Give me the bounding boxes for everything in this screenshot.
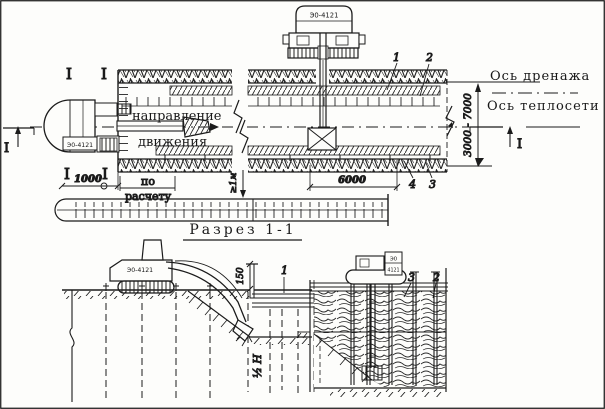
left-boundary-break xyxy=(70,290,74,402)
callout-3: 3 xyxy=(429,178,436,191)
scheme-drawing: Э0-4121 Э0-4121 I I I xyxy=(0,0,605,409)
dim-width-range: 3000 - 7000 xyxy=(447,83,492,167)
drawing-sheet: Э0-4121 Э0-4121 I I I xyxy=(0,0,605,409)
trench-section-shored: Э0 4121 3 2 xyxy=(297,252,448,397)
callout-2-section: 2 xyxy=(432,271,440,284)
excavator-top-label: Э0-4121 xyxy=(310,12,339,20)
callout-1: 1 xyxy=(393,51,400,64)
section-mark-i: I xyxy=(66,65,72,83)
dim-half-depth-text: ½ Н xyxy=(251,354,264,378)
pile-machine-label-line2: 4121 xyxy=(387,268,399,274)
excavator-section-label: Э0-4121 xyxy=(127,267,153,274)
excavator-plan-label: Э0-4121 xyxy=(67,142,93,149)
pile-machine-label-line1: Э0 xyxy=(390,257,398,263)
section-mark-i: I xyxy=(102,165,108,183)
dim-calc-word1: по xyxy=(141,175,155,188)
callout-4: 4 xyxy=(408,178,416,191)
axis-drain-label: Ось дренажа xyxy=(490,69,590,84)
dim-span-text: 6000 xyxy=(338,175,366,186)
section-mark-i: I xyxy=(101,65,107,83)
dim-min-distance: ≥1м xyxy=(229,170,246,198)
dim-width-range-text: 3000 - 7000 xyxy=(462,93,474,157)
direction-text-line1: направление xyxy=(132,109,222,124)
axis-heat-label: Ось теплосети xyxy=(487,99,600,114)
section-mark-i: I xyxy=(4,141,9,156)
section-title-group: Разрез 1-1 xyxy=(183,222,302,240)
plan-view: Э0-4121 Э0-4121 I I I xyxy=(3,6,600,226)
dim-offset-text: 1000 xyxy=(74,174,102,185)
section-mark-i: I xyxy=(517,137,522,152)
dim-min-distance-text: ≥1м xyxy=(229,173,239,194)
callout-1-section: 1 xyxy=(281,264,288,277)
section-line-left: I xyxy=(3,126,34,156)
section-mark-i: I xyxy=(64,165,70,183)
dim-board-top-text: 150 xyxy=(236,267,246,284)
section-view: ½ Н Э0-4121 150 xyxy=(62,240,448,402)
dim-calc-word2: расчету xyxy=(125,190,172,203)
callout-2: 2 xyxy=(425,51,433,64)
direction-text-line2: движения xyxy=(138,135,207,150)
callout-3-section: 3 xyxy=(408,271,415,284)
section-title: Разрез 1-1 xyxy=(189,222,296,238)
